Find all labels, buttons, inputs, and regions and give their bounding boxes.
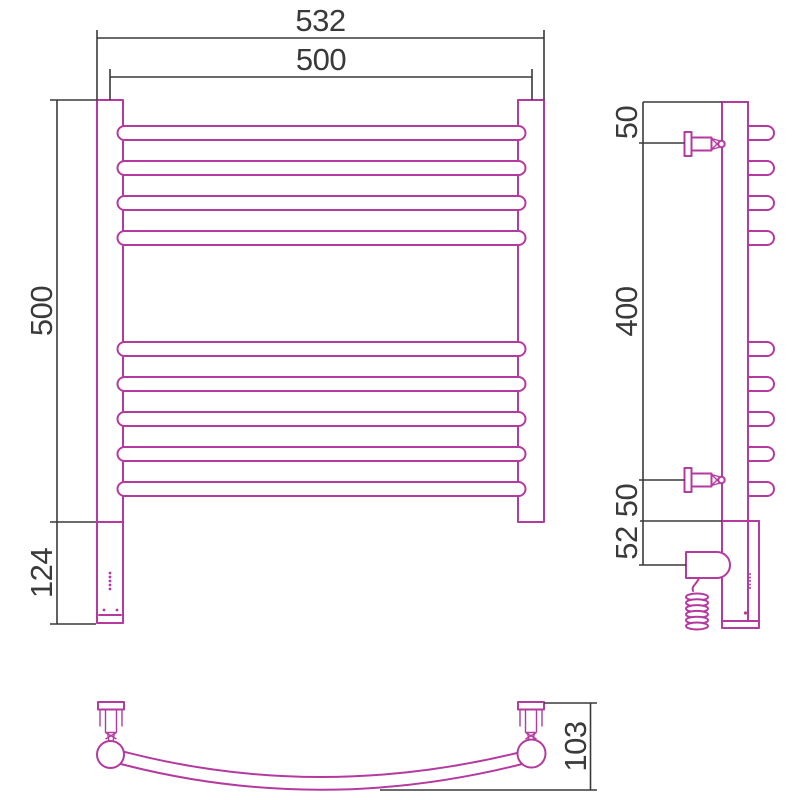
rail-bar [118,482,526,496]
power-cord [693,578,699,591]
front-left-post [97,100,123,623]
dim-label-rail-height: 500 [24,286,59,336]
brand-marking-dots [749,573,751,589]
rail-bar [118,161,526,175]
front-view: 532 500 500 124 [24,3,544,624]
rail-bar [118,196,526,210]
rail-bar [118,342,526,356]
rail-bar-end [748,126,774,140]
curved-rail-inner-arc [123,751,527,778]
power-cord-coil [686,594,708,630]
rail-bar-end [748,161,774,175]
collector-bottom-cap [722,621,759,628]
front-rail-bars [118,126,526,496]
towel-rail-drawing: 532 500 500 124 [0,0,800,800]
dim-label-top-bracket-offset: 50 [609,106,644,140]
rail-bar-end [748,447,774,461]
front-dimension-lines [50,30,544,624]
side-wall-bracket-top [685,132,725,156]
rail-bar-end [748,196,774,210]
rail-bar [118,412,526,426]
side-dimension-lines [639,102,722,565]
rail-bar-end [748,342,774,356]
bottom-right-bracket [518,702,544,741]
side-wall-bracket-bottom [685,468,725,492]
rail-bar [118,126,526,140]
rail-bar-end [748,231,774,245]
curved-rail-outer-arc [117,762,530,790]
side-collector-tube [722,102,759,628]
dim-label-bottom-bracket-offset: 50 [609,484,644,518]
left-collector-circle [97,741,124,768]
rail-bar-end [748,482,774,496]
rail-bar-end [748,377,774,391]
dim-label-bracket-spacing: 400 [609,286,644,336]
bottom-view: 103 [97,702,597,790]
technical-drawing-page: 532 500 500 124 [0,0,800,800]
rail-bar [118,377,526,391]
bottom-left-bracket [98,702,124,741]
side-rail-bar-ends [748,126,774,496]
cable-entry-dot [744,611,747,614]
right-collector-circle [518,740,546,768]
side-heater-housing [686,552,730,578]
side-view: 50 400 50 52 [609,102,774,630]
rail-bar [118,447,526,461]
dim-label-overall-width: 532 [295,3,345,38]
dim-label-heater-drop: 52 [609,526,644,559]
rail-bar [118,231,526,245]
dim-label-rail-width: 500 [296,42,346,77]
dim-label-heater-section-height: 124 [24,548,59,598]
rail-bar-end [748,412,774,426]
dim-label-depth: 103 [558,721,593,771]
